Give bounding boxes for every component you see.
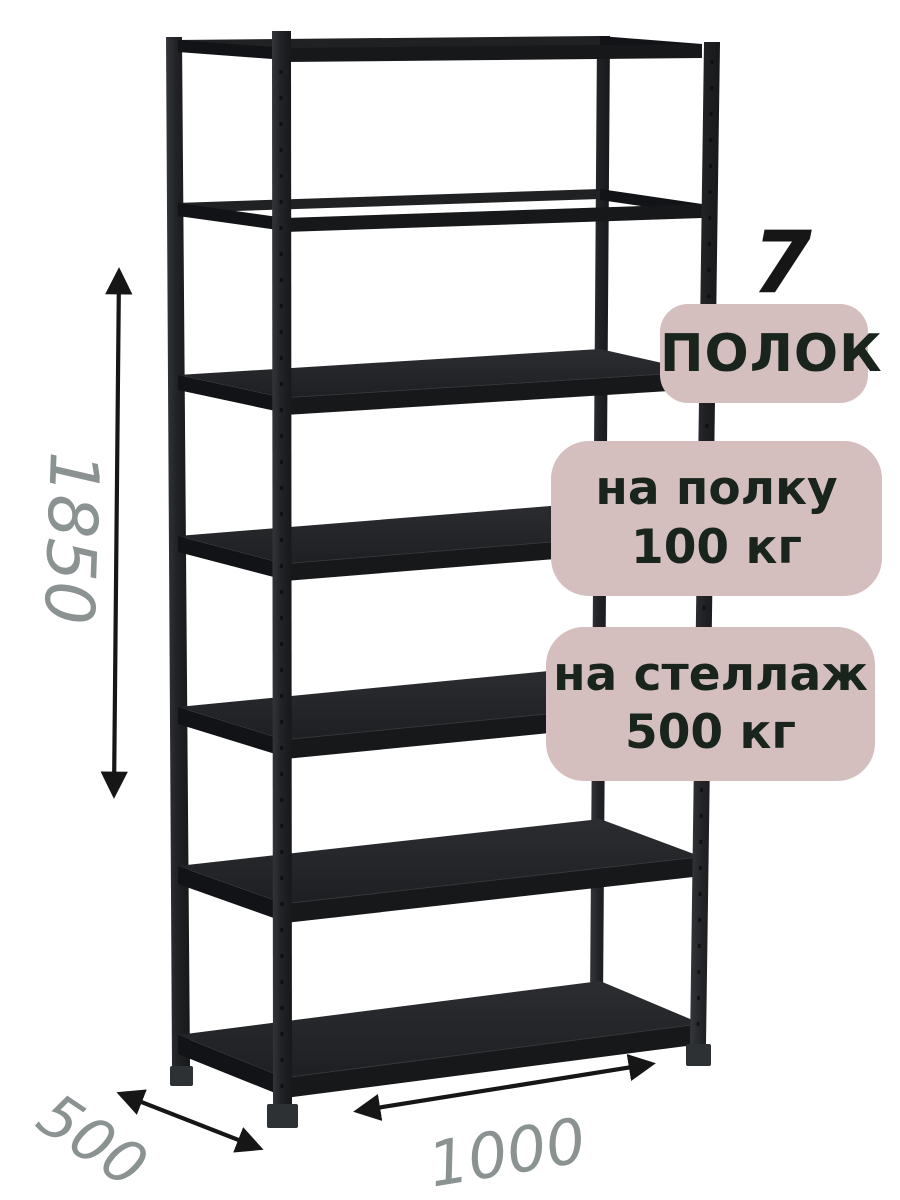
- rack-load-badge: на стеллаж 500 кг: [546, 627, 875, 781]
- rack-load-line2: 500 кг: [546, 704, 875, 762]
- back-left-post: [166, 37, 193, 1086]
- height-dimension-arrow: [114, 272, 119, 794]
- shelf-count-number: 7: [732, 220, 832, 306]
- shelf-6: [178, 819, 702, 923]
- back-left-foot: [170, 1066, 193, 1086]
- shelf-load-line2: 100 кг: [551, 519, 882, 577]
- front-right-foot: [686, 1044, 711, 1066]
- shelf-count-badge-label: ПОЛОК: [660, 324, 868, 384]
- product-image: 1850 500 1000 7 ПОЛОК на полку 100 кг на…: [0, 0, 900, 1200]
- shelf-1: [176, 36, 702, 62]
- shelf-2: [176, 189, 702, 232]
- shelf-7: [178, 981, 702, 1098]
- shelf-3: [178, 349, 702, 415]
- rack-load-line1: на стеллаж: [546, 646, 875, 704]
- front-left-foot: [267, 1104, 298, 1128]
- rack-illustration: [0, 0, 900, 1200]
- shelf-load-badge: на полку 100 кг: [551, 441, 882, 596]
- height-dimension-label: 1850: [21, 387, 115, 690]
- shelf-load-line1: на полку: [551, 460, 882, 518]
- shelf-count-badge: ПОЛОК: [660, 304, 868, 403]
